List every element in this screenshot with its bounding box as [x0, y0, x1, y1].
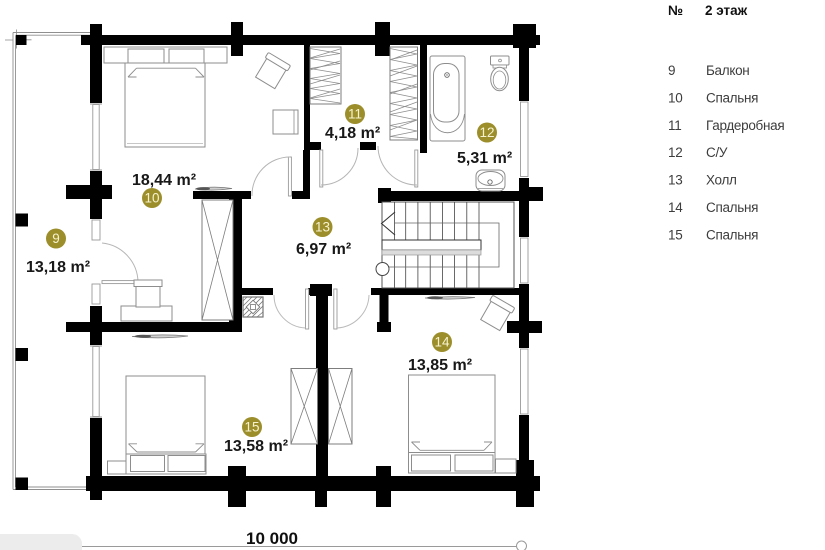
- svg-text:15: 15: [244, 420, 259, 435]
- svg-text:13: 13: [315, 220, 330, 235]
- svg-text:Холл: Холл: [706, 173, 737, 188]
- svg-text:Спальня: Спальня: [706, 90, 758, 105]
- svg-text:9: 9: [668, 63, 675, 78]
- svg-text:6,97 m²: 6,97 m²: [296, 241, 351, 258]
- svg-text:10: 10: [144, 191, 159, 206]
- svg-text:Спальня: Спальня: [706, 227, 758, 242]
- svg-text:13,85 m²: 13,85 m²: [408, 357, 472, 374]
- svg-text:12: 12: [668, 145, 682, 160]
- svg-text:№: №: [668, 3, 683, 18]
- svg-text:Спальня: Спальня: [706, 200, 758, 215]
- svg-text:13,58 m²: 13,58 m²: [224, 438, 288, 455]
- svg-text:10 000: 10 000: [246, 529, 298, 548]
- svg-text:14: 14: [434, 335, 450, 350]
- svg-text:14: 14: [668, 200, 683, 215]
- svg-text:2 этаж: 2 этаж: [705, 3, 748, 18]
- svg-text:10: 10: [668, 90, 682, 105]
- svg-text:13,18 m²: 13,18 m²: [26, 259, 90, 276]
- svg-text:5,31 m²: 5,31 m²: [457, 150, 512, 167]
- svg-text:Балкон: Балкон: [706, 63, 749, 78]
- svg-text:13: 13: [668, 173, 682, 188]
- svg-text:15: 15: [668, 227, 682, 242]
- svg-text:9: 9: [52, 231, 60, 246]
- svg-text:11: 11: [348, 107, 362, 122]
- svg-text:4,18 m²: 4,18 m²: [325, 125, 380, 142]
- svg-text:11: 11: [668, 118, 681, 133]
- svg-text:12: 12: [479, 125, 494, 140]
- svg-text:18,44 m²: 18,44 m²: [132, 172, 196, 189]
- svg-text:Гардеробная: Гардеробная: [706, 118, 784, 133]
- svg-text:С/У: С/У: [706, 145, 728, 160]
